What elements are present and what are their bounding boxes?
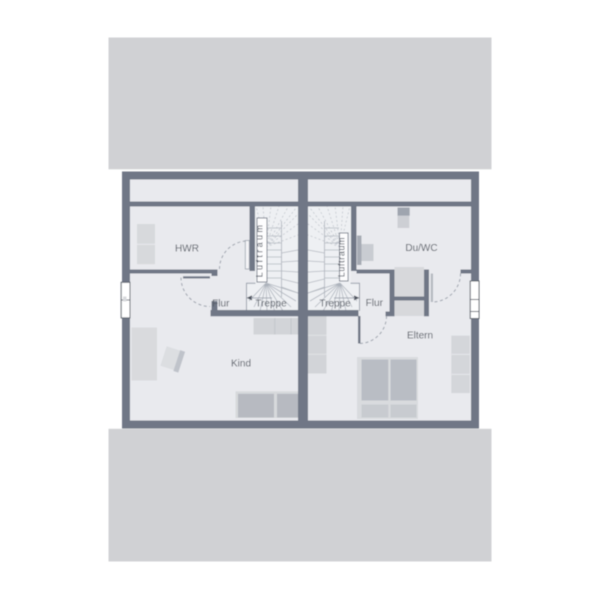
svg-text:Luftraum: Luftraum	[255, 223, 265, 278]
svg-text:HWR: HWR	[175, 244, 199, 255]
svg-text:Treppe: Treppe	[319, 299, 351, 310]
svg-text:Kind: Kind	[231, 359, 251, 370]
svg-text:Treppe: Treppe	[255, 299, 287, 310]
svg-text:Eltern: Eltern	[407, 331, 433, 342]
svg-text:Du/WC: Du/WC	[405, 243, 437, 254]
svg-text:Flur: Flur	[212, 299, 230, 310]
svg-text:Flur: Flur	[366, 298, 384, 309]
svg-text:Luftraum: Luftraum	[336, 237, 346, 277]
